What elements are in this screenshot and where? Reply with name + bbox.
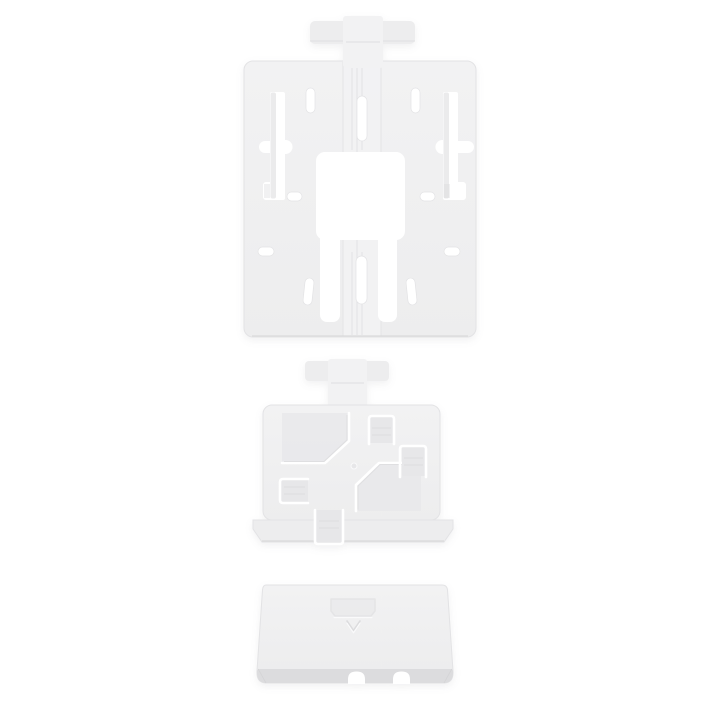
clip-body (402, 446, 426, 476)
slot-top-right (411, 88, 420, 113)
keyhole-pill (451, 141, 474, 153)
keyhole-inner-shadow (444, 93, 450, 199)
clip-top (369, 416, 394, 444)
square-cutout (316, 152, 405, 240)
pocket-outline (331, 599, 375, 616)
slot-center-top (357, 96, 367, 141)
lock-bracket (253, 359, 453, 544)
keyhole-foot-shadow (264, 184, 270, 198)
clip-right (400, 446, 426, 477)
slot-inner-left (287, 192, 302, 201)
clip-left (280, 479, 308, 503)
keyhole-bump (279, 140, 293, 154)
tab-stem (328, 359, 367, 409)
slot-mid-left (258, 247, 274, 256)
slot-inner-right (420, 192, 435, 201)
mounting-plate-tab (310, 16, 415, 68)
mounting-plate (244, 16, 476, 337)
slot-top-left (306, 88, 315, 113)
clip-bottom (315, 510, 343, 544)
slot-mid-right (444, 247, 460, 256)
clip-body (280, 479, 308, 503)
center-dimple (351, 463, 357, 469)
clip-body (369, 416, 394, 443)
cutout-leg-right (378, 230, 397, 322)
bracket-tab (305, 359, 389, 409)
product-photo-stage (0, 0, 720, 720)
slot-center-bottom (356, 256, 367, 304)
bracket-skirt (253, 520, 453, 542)
keyhole-foot-shadow (444, 184, 450, 198)
notch-left (348, 672, 365, 685)
latch-pocket (331, 599, 375, 618)
product-photo (0, 0, 720, 720)
notch-right (393, 672, 410, 685)
keyhole-inner-shadow (271, 93, 277, 199)
cutout-leg-left (320, 230, 340, 322)
clip-body (315, 510, 343, 544)
cover-wedge (257, 585, 453, 684)
